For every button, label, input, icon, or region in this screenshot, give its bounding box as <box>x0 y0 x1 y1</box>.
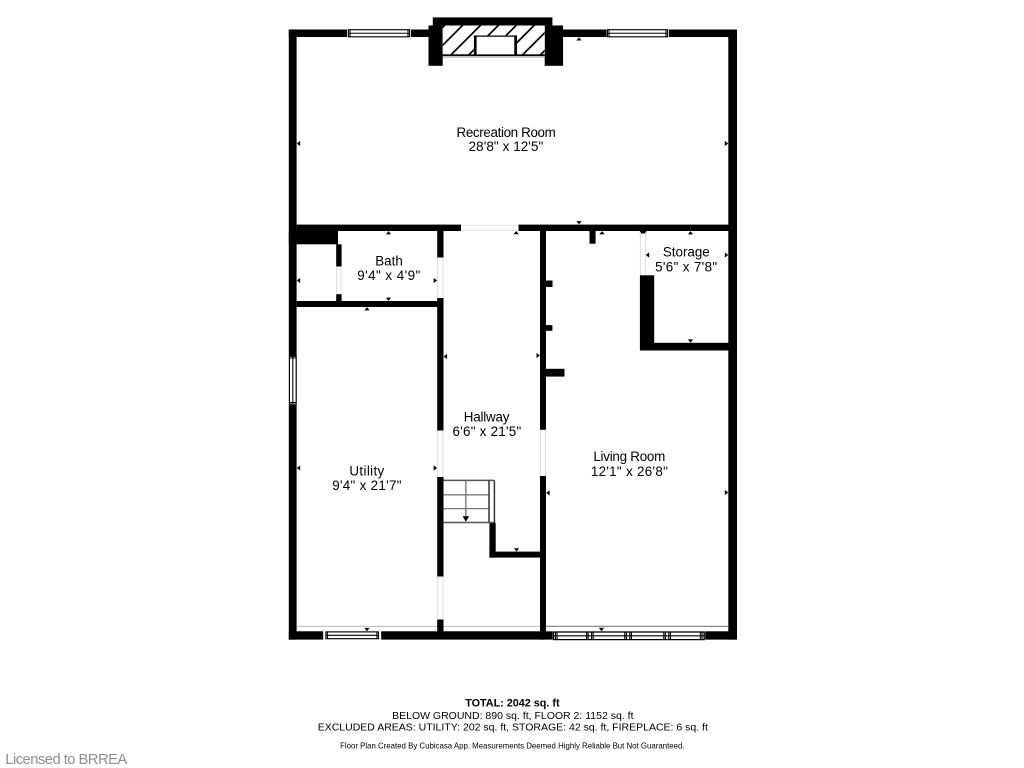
svg-text:EXCLUDED AREAS: UTILITY: 202 s: EXCLUDED AREAS: UTILITY: 202 sq. ft, STO… <box>318 722 708 734</box>
svg-text:BELOW GROUND: 890 sq. ft, FLOO: BELOW GROUND: 890 sq. ft, FLOOR 2: 1152 … <box>392 710 633 722</box>
svg-text:9'4" x 21'7": 9'4" x 21'7" <box>332 478 402 493</box>
svg-text:TOTAL: 2042 sq. ft: TOTAL: 2042 sq. ft <box>465 698 560 710</box>
svg-text:Bath: Bath <box>375 253 403 268</box>
svg-text:Floor Plan Created By Cubicasa: Floor Plan Created By Cubicasa App. Meas… <box>340 742 684 751</box>
svg-text:Living Room: Living Room <box>593 449 665 464</box>
svg-text:Utility: Utility <box>349 464 384 479</box>
svg-text:Recreation Room: Recreation Room <box>457 125 556 140</box>
svg-text:Storage: Storage <box>663 244 710 259</box>
svg-text:Hallway: Hallway <box>464 410 510 425</box>
svg-text:Licensed to BRREA: Licensed to BRREA <box>5 752 127 768</box>
svg-text:6'6" x 21'5": 6'6" x 21'5" <box>453 424 522 439</box>
svg-text:28'8" x 12'5": 28'8" x 12'5" <box>469 139 544 154</box>
svg-text:9'4" x 4'9": 9'4" x 4'9" <box>357 268 421 283</box>
svg-text:12'1" x 26'8": 12'1" x 26'8" <box>591 464 668 479</box>
svg-text:5'6" x 7'8": 5'6" x 7'8" <box>655 259 717 274</box>
